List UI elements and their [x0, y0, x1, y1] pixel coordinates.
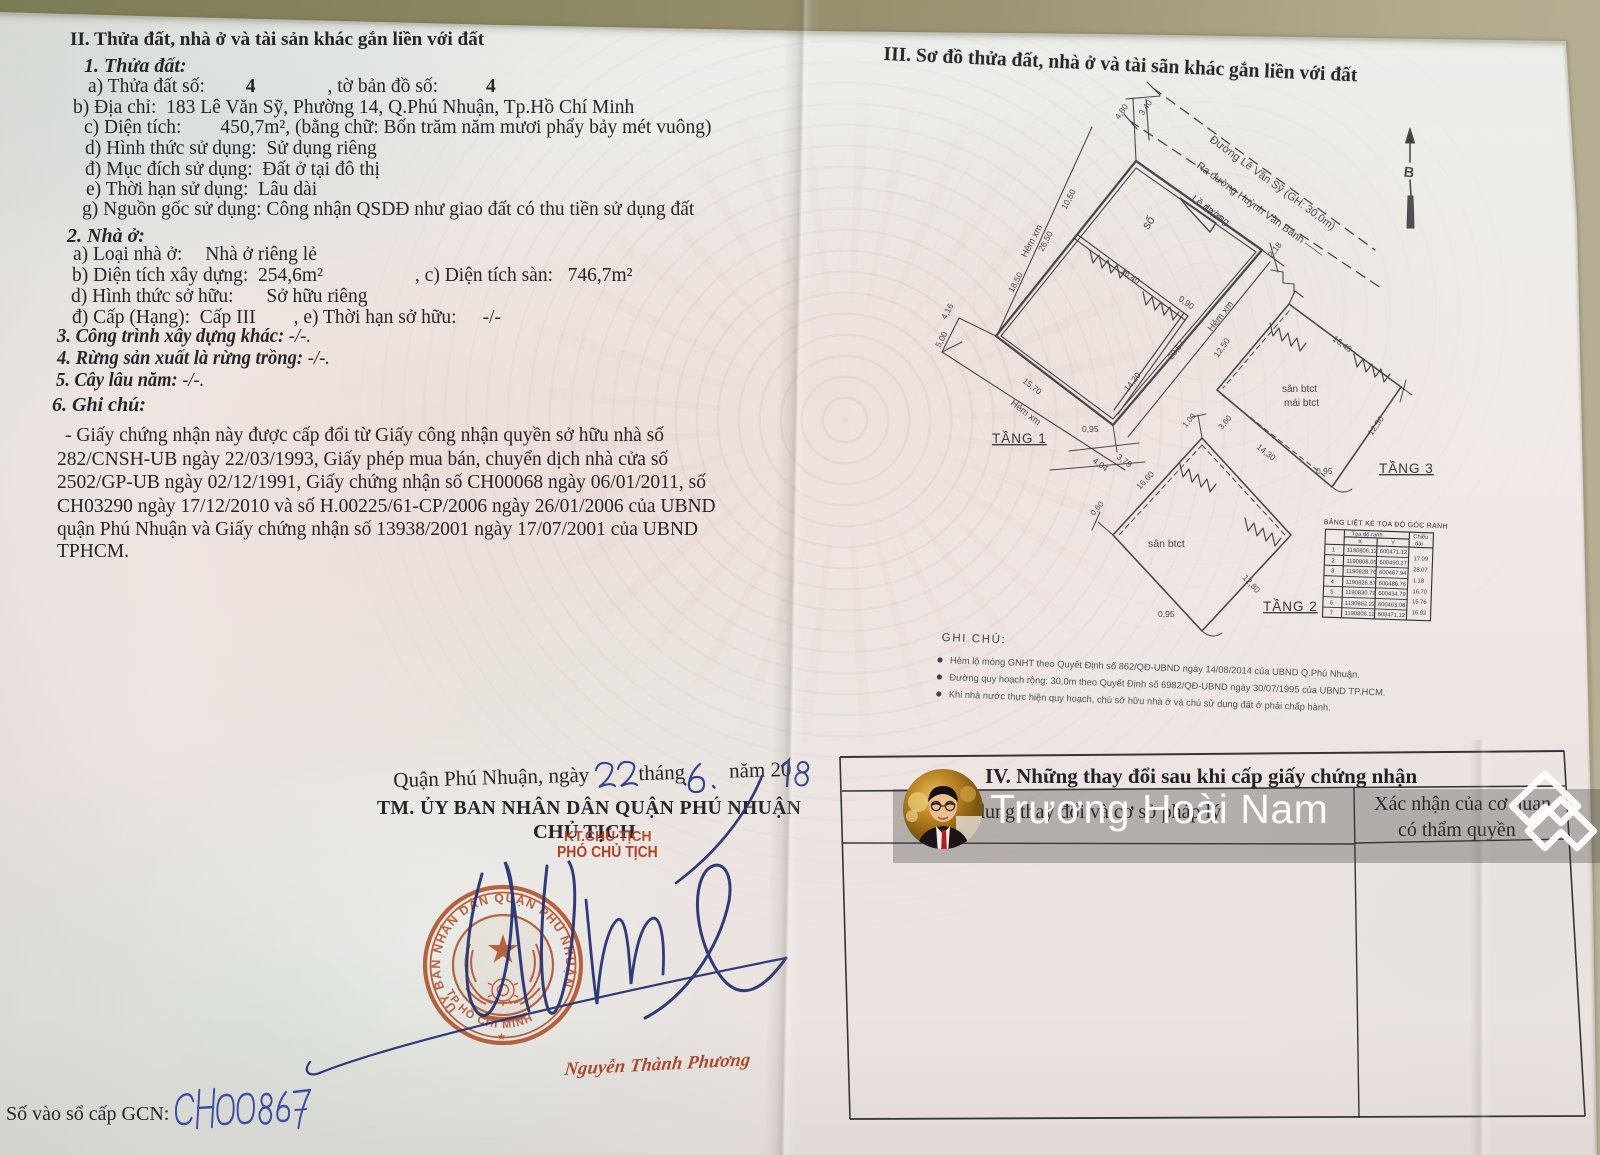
- svg-text:★: ★: [497, 1032, 506, 1043]
- svg-text:Nguyễn Thành Phương: Nguyễn Thành Phương: [562, 1049, 751, 1080]
